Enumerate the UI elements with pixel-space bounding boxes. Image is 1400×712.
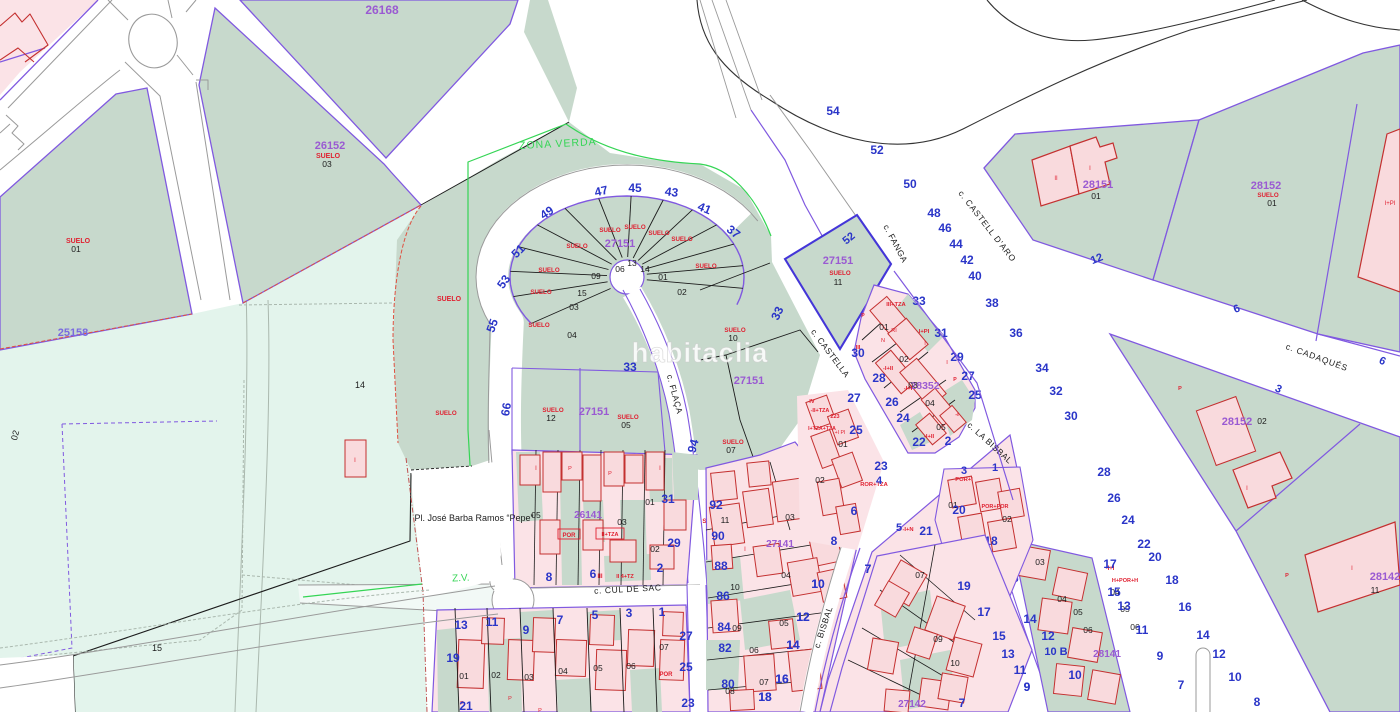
svg-text:IV: IV bbox=[809, 399, 815, 405]
svg-text:02: 02 bbox=[677, 287, 687, 297]
svg-text:P: P bbox=[861, 313, 865, 319]
svg-text:10: 10 bbox=[950, 658, 960, 668]
svg-text:02: 02 bbox=[815, 475, 825, 485]
svg-text:03: 03 bbox=[524, 672, 534, 682]
svg-text:3: 3 bbox=[626, 606, 633, 620]
svg-text:27151: 27151 bbox=[823, 255, 854, 267]
svg-text:06: 06 bbox=[749, 645, 759, 655]
svg-text:28: 28 bbox=[1097, 465, 1111, 479]
svg-text:20: 20 bbox=[952, 503, 966, 517]
svg-text:POR+POR: POR+POR bbox=[981, 504, 1008, 510]
svg-text:P: P bbox=[568, 466, 572, 472]
svg-text:01: 01 bbox=[879, 322, 889, 332]
svg-text:30: 30 bbox=[851, 346, 865, 360]
svg-text:44: 44 bbox=[949, 237, 963, 251]
svg-text:4: 4 bbox=[876, 475, 883, 487]
svg-text:10: 10 bbox=[811, 577, 825, 591]
svg-text:32: 32 bbox=[1049, 384, 1063, 398]
svg-text:07: 07 bbox=[915, 570, 925, 580]
svg-text:7: 7 bbox=[557, 613, 564, 627]
svg-text:2: 2 bbox=[657, 561, 664, 575]
svg-text:06: 06 bbox=[615, 264, 625, 274]
svg-text:-II+TZA: -II+TZA bbox=[811, 408, 830, 414]
svg-text:14: 14 bbox=[355, 380, 365, 390]
svg-text:86: 86 bbox=[716, 589, 730, 603]
svg-text:90: 90 bbox=[711, 529, 725, 543]
svg-text:RI: RI bbox=[891, 328, 897, 334]
svg-text:26141: 26141 bbox=[574, 510, 602, 521]
svg-text:12: 12 bbox=[546, 413, 556, 423]
svg-text:07: 07 bbox=[726, 445, 736, 455]
svg-text:31: 31 bbox=[661, 492, 675, 506]
svg-text:7: 7 bbox=[959, 696, 966, 710]
svg-text:01: 01 bbox=[1091, 191, 1101, 201]
svg-text:14: 14 bbox=[1196, 628, 1210, 642]
svg-text:2: 2 bbox=[945, 434, 952, 448]
svg-text:16: 16 bbox=[1178, 600, 1192, 614]
svg-text:N: N bbox=[881, 338, 885, 344]
svg-text:27151: 27151 bbox=[734, 375, 765, 387]
svg-text:P: P bbox=[608, 471, 612, 477]
svg-text:28152: 28152 bbox=[1222, 416, 1253, 428]
svg-text:8: 8 bbox=[831, 534, 838, 548]
svg-text:12: 12 bbox=[1212, 647, 1226, 661]
svg-text:-I: -I bbox=[955, 412, 959, 418]
svg-text:P: P bbox=[538, 708, 542, 712]
svg-text:28: 28 bbox=[872, 371, 886, 385]
svg-text:15: 15 bbox=[1107, 585, 1121, 599]
svg-text:13: 13 bbox=[454, 618, 468, 632]
svg-text:84: 84 bbox=[717, 620, 731, 634]
svg-text:82: 82 bbox=[718, 641, 732, 655]
svg-text:01: 01 bbox=[645, 497, 655, 507]
svg-text:43: 43 bbox=[664, 184, 679, 200]
svg-text:21: 21 bbox=[919, 524, 933, 538]
svg-text:17: 17 bbox=[977, 605, 991, 619]
svg-text:27: 27 bbox=[679, 629, 693, 643]
svg-text:POR: POR bbox=[562, 533, 576, 539]
svg-text:27: 27 bbox=[847, 391, 861, 405]
svg-text:II 4+TZ: II 4+TZ bbox=[616, 574, 634, 580]
svg-text:27142: 27142 bbox=[898, 699, 926, 710]
svg-text:05: 05 bbox=[621, 420, 631, 430]
svg-text:28151: 28151 bbox=[1083, 179, 1114, 191]
svg-text:38: 38 bbox=[985, 296, 999, 310]
svg-text:03: 03 bbox=[569, 302, 579, 312]
svg-text:SUELO: SUELO bbox=[538, 267, 560, 274]
svg-text:05: 05 bbox=[593, 663, 603, 673]
svg-text:III+TZA: III+TZA bbox=[886, 302, 906, 308]
svg-text:06: 06 bbox=[626, 661, 636, 671]
svg-text:50: 50 bbox=[903, 177, 917, 191]
svg-text:25: 25 bbox=[679, 660, 693, 674]
svg-text:Z.V.: Z.V. bbox=[452, 573, 470, 585]
svg-text:01: 01 bbox=[1267, 198, 1277, 208]
svg-text:SUELO: SUELO bbox=[695, 263, 717, 270]
svg-text:6: 6 bbox=[590, 567, 597, 581]
svg-text:03: 03 bbox=[785, 512, 795, 522]
svg-text:P: P bbox=[1285, 573, 1289, 579]
svg-text:05: 05 bbox=[936, 422, 946, 432]
svg-text:I+PI: I+PI bbox=[919, 329, 930, 335]
svg-text:habitaclia: habitaclia bbox=[632, 337, 769, 368]
svg-text:Pl. José Barba Ramos “Pepe”: Pl. José Barba Ramos “Pepe” bbox=[414, 513, 533, 523]
svg-text:45: 45 bbox=[628, 181, 642, 195]
svg-text:17: 17 bbox=[1103, 557, 1117, 571]
svg-text:27151: 27151 bbox=[579, 406, 610, 418]
svg-text:34: 34 bbox=[1035, 361, 1049, 375]
svg-text:02: 02 bbox=[1257, 416, 1267, 426]
svg-text:40: 40 bbox=[968, 269, 982, 283]
svg-text:07: 07 bbox=[759, 677, 769, 687]
svg-text:POR+I: POR+I bbox=[955, 477, 973, 483]
svg-text:1: 1 bbox=[992, 462, 998, 474]
svg-text:07: 07 bbox=[659, 642, 669, 652]
svg-text:24: 24 bbox=[896, 411, 910, 425]
svg-text:SUELO: SUELO bbox=[599, 227, 621, 234]
svg-text:36: 36 bbox=[1009, 326, 1023, 340]
svg-text:14: 14 bbox=[786, 638, 800, 652]
svg-text:I+TZA+TZA: I+TZA+TZA bbox=[808, 426, 836, 432]
svg-text:22: 22 bbox=[912, 435, 926, 449]
svg-text:26152: 26152 bbox=[315, 140, 346, 152]
svg-text:18: 18 bbox=[758, 690, 772, 704]
svg-text:05: 05 bbox=[1073, 607, 1083, 617]
svg-text:5: 5 bbox=[592, 608, 599, 622]
svg-text:SUELO: SUELO bbox=[435, 410, 457, 417]
svg-text:II+TZA: II+TZA bbox=[602, 532, 619, 538]
svg-text:13: 13 bbox=[1001, 647, 1015, 661]
svg-text:P: P bbox=[953, 377, 957, 383]
svg-text:30: 30 bbox=[1064, 409, 1078, 423]
svg-text:14: 14 bbox=[1023, 612, 1037, 626]
svg-text:09: 09 bbox=[591, 271, 601, 281]
svg-text:9: 9 bbox=[1024, 680, 1031, 694]
svg-text:22: 22 bbox=[1137, 537, 1151, 551]
svg-text:11: 11 bbox=[834, 277, 843, 287]
svg-text:52: 52 bbox=[870, 143, 884, 157]
svg-text:12: 12 bbox=[796, 610, 810, 624]
svg-text:24: 24 bbox=[1121, 513, 1135, 527]
svg-text:11: 11 bbox=[721, 515, 730, 525]
svg-text:-I+I: -I+I bbox=[904, 386, 913, 392]
svg-text:13: 13 bbox=[627, 258, 637, 268]
svg-text:9: 9 bbox=[523, 623, 530, 637]
svg-text:54: 54 bbox=[826, 104, 840, 118]
svg-text:80: 80 bbox=[721, 677, 735, 691]
svg-text:03: 03 bbox=[1035, 557, 1045, 567]
svg-text:03: 03 bbox=[617, 517, 627, 527]
svg-text:P: P bbox=[508, 696, 512, 702]
svg-text:SUELO: SUELO bbox=[530, 289, 552, 296]
svg-text:II: II bbox=[1054, 176, 1058, 182]
svg-text:ROR+TZA: ROR+TZA bbox=[860, 482, 888, 488]
svg-text:+I PI: +I PI bbox=[835, 430, 846, 436]
svg-text:SUELO: SUELO bbox=[437, 296, 462, 303]
svg-text:92: 92 bbox=[709, 498, 723, 512]
svg-text:10: 10 bbox=[1228, 670, 1242, 684]
svg-text:48: 48 bbox=[927, 206, 941, 220]
svg-text:04: 04 bbox=[781, 570, 791, 580]
svg-text:02: 02 bbox=[899, 354, 909, 364]
svg-text:15: 15 bbox=[152, 643, 162, 653]
svg-text:10: 10 bbox=[730, 582, 740, 592]
svg-text:21: 21 bbox=[459, 699, 473, 712]
svg-text:01: 01 bbox=[459, 671, 469, 681]
svg-text:III: III bbox=[597, 574, 602, 580]
svg-text:SUELO: SUELO bbox=[566, 243, 588, 250]
svg-text:-I+N: -I+N bbox=[902, 527, 913, 533]
svg-text:28152: 28152 bbox=[1251, 180, 1282, 192]
svg-text:I+PI: I+PI bbox=[1385, 201, 1396, 207]
svg-text:15: 15 bbox=[577, 288, 587, 298]
svg-text:09: 09 bbox=[732, 623, 742, 633]
svg-text:04: 04 bbox=[1057, 594, 1067, 604]
svg-text:SUELO: SUELO bbox=[829, 270, 851, 277]
svg-text:10 B: 10 B bbox=[1044, 646, 1067, 658]
svg-text:25158: 25158 bbox=[58, 327, 89, 339]
svg-text:11: 11 bbox=[1136, 623, 1149, 637]
svg-text:01: 01 bbox=[71, 244, 81, 254]
svg-text:1: 1 bbox=[659, 605, 666, 619]
svg-text:12: 12 bbox=[1041, 629, 1055, 643]
svg-text:28141: 28141 bbox=[1093, 649, 1121, 660]
svg-text:27151: 27151 bbox=[605, 238, 636, 250]
svg-text:19: 19 bbox=[446, 651, 460, 665]
svg-text:9: 9 bbox=[1157, 649, 1164, 663]
svg-text:09: 09 bbox=[933, 634, 943, 644]
svg-text:13: 13 bbox=[1117, 599, 1131, 613]
svg-text:42: 42 bbox=[960, 253, 974, 267]
svg-text:SUELO: SUELO bbox=[671, 236, 693, 243]
svg-text:6: 6 bbox=[851, 504, 858, 518]
svg-text:29: 29 bbox=[667, 536, 681, 550]
svg-text:26168: 26168 bbox=[365, 3, 399, 17]
svg-text:16: 16 bbox=[775, 672, 789, 686]
svg-text:15: 15 bbox=[992, 629, 1006, 643]
svg-text:H+POR+H: H+POR+H bbox=[1112, 578, 1138, 584]
svg-text:28142: 28142 bbox=[1370, 571, 1400, 583]
svg-text:06: 06 bbox=[1083, 625, 1093, 635]
svg-text:23: 23 bbox=[681, 696, 695, 710]
svg-text:SUELO: SUELO bbox=[648, 230, 670, 237]
svg-text:25: 25 bbox=[968, 388, 982, 402]
svg-text:05: 05 bbox=[779, 618, 789, 628]
svg-text:23: 23 bbox=[874, 459, 888, 473]
svg-text:04: 04 bbox=[567, 330, 577, 340]
svg-text:88: 88 bbox=[714, 559, 728, 573]
svg-text:7: 7 bbox=[865, 562, 872, 576]
svg-text:8: 8 bbox=[546, 570, 553, 584]
svg-text:19: 19 bbox=[957, 579, 971, 593]
svg-text:27141: 27141 bbox=[766, 539, 794, 550]
svg-text:223: 223 bbox=[830, 414, 839, 420]
svg-text:10: 10 bbox=[1068, 668, 1082, 682]
svg-text:01: 01 bbox=[838, 439, 848, 449]
svg-text:20: 20 bbox=[1148, 550, 1162, 564]
svg-text:26: 26 bbox=[885, 395, 899, 409]
svg-text:14: 14 bbox=[640, 264, 650, 274]
svg-text:SUELO: SUELO bbox=[528, 322, 550, 329]
svg-text:11: 11 bbox=[1014, 663, 1027, 677]
svg-text:01: 01 bbox=[658, 272, 668, 282]
svg-text:02: 02 bbox=[650, 544, 660, 554]
svg-text:11: 11 bbox=[486, 615, 499, 629]
svg-text:04: 04 bbox=[558, 666, 568, 676]
svg-text:SUELO: SUELO bbox=[624, 224, 646, 231]
svg-text:03: 03 bbox=[322, 159, 332, 169]
svg-text:18: 18 bbox=[1165, 573, 1179, 587]
svg-text:POR: POR bbox=[659, 672, 673, 678]
svg-text:11: 11 bbox=[1371, 585, 1380, 595]
svg-text:7: 7 bbox=[1178, 678, 1185, 692]
svg-text:46: 46 bbox=[938, 221, 952, 235]
svg-text:P: P bbox=[1178, 386, 1182, 392]
svg-text:02: 02 bbox=[1002, 514, 1012, 524]
svg-text:5: 5 bbox=[896, 522, 902, 534]
svg-text:04: 04 bbox=[925, 398, 935, 408]
svg-text:8: 8 bbox=[1254, 695, 1261, 709]
svg-text:3: 3 bbox=[961, 465, 967, 477]
svg-text:25: 25 bbox=[849, 423, 863, 437]
svg-text:02: 02 bbox=[491, 670, 501, 680]
svg-text:26: 26 bbox=[1107, 491, 1121, 505]
svg-text:66: 66 bbox=[498, 401, 514, 417]
